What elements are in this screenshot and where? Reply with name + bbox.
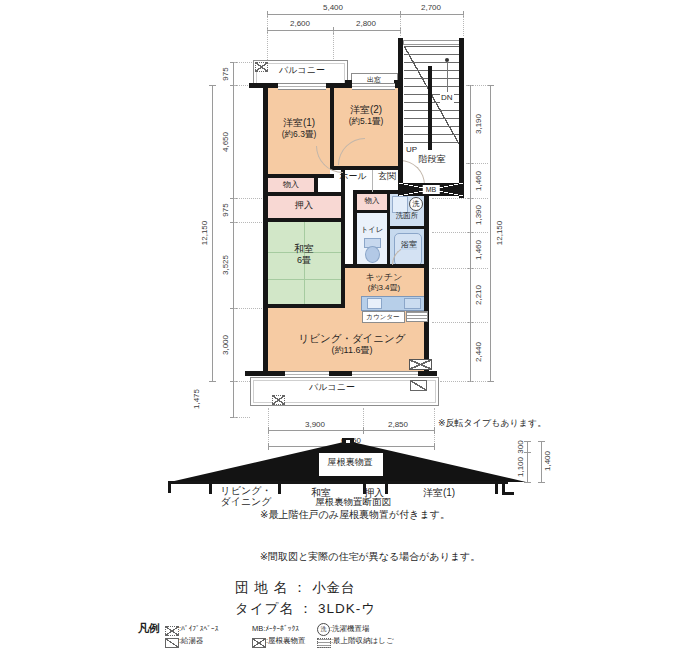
dim-left-3525: 3,525	[221, 255, 230, 275]
wall-stair-left	[398, 38, 403, 185]
dim-extension	[432, 268, 488, 269]
dim-right-1460b: 1,460	[474, 240, 483, 260]
washitsu-size: 6畳	[297, 256, 311, 266]
legend-laundry-icon: 洗	[317, 623, 330, 636]
dim-right-total: 12,150	[495, 221, 504, 245]
dim-line	[212, 85, 213, 381]
dim-left-3000: 3,000	[221, 335, 230, 355]
dim-tick	[209, 381, 216, 382]
section-yoshitsu1-label: 洋室(1)	[423, 487, 455, 498]
monoire-b-label: 物入	[365, 197, 380, 205]
section-dim-1100: 1,100	[516, 457, 525, 477]
dim-extension	[466, 163, 488, 164]
balcony-bottom-label: バルコニー	[307, 383, 357, 393]
dim-tick	[363, 427, 364, 434]
bath-label: 浴室	[401, 241, 417, 250]
legend-water-heater-label: :給湯器	[179, 637, 204, 645]
section-divider	[278, 484, 281, 494]
stair-landing	[403, 40, 461, 45]
dim-left-4650: 4,650	[221, 132, 230, 152]
wall-left	[263, 83, 268, 376]
section-living-label-2: ダイニング	[220, 496, 271, 507]
dim-line	[233, 62, 234, 417]
wall-corridor-left	[341, 170, 345, 308]
yoshitsu2-size: (約5.1畳)	[349, 117, 383, 126]
monoire-a-label: 物入	[283, 181, 299, 190]
dim-tick	[434, 427, 435, 434]
dim-left-975b: 975	[221, 203, 230, 216]
dim-tick	[487, 85, 494, 86]
roof-vent-hole	[346, 440, 350, 443]
stair-up-label: UP	[405, 146, 418, 155]
window-top-bay	[352, 83, 395, 90]
section-divider	[495, 484, 498, 494]
dim-extension	[432, 198, 488, 199]
dim-right-3190: 3,190	[474, 114, 483, 134]
legend-ladder-icon	[317, 638, 331, 648]
living-label: リビング・ダイニング	[298, 333, 405, 345]
genkan-step-line	[372, 170, 373, 192]
note-reverse-type: ※反転タイプもあります。	[438, 419, 546, 429]
dim-top-2800: 2,800	[356, 19, 376, 28]
wall-monoire-b-bottom	[353, 210, 390, 213]
water-heater-icon	[410, 380, 427, 391]
legend-mb-label: MB:ﾒｰﾀｰﾎﾞｯｸｽ	[252, 625, 299, 633]
legend-attic-label: :屋根裏物置	[266, 637, 306, 645]
legend-title: 凡例	[138, 622, 160, 634]
yoshitsu1-size: (約6.3畳)	[282, 130, 316, 139]
wall-monoire-right	[314, 174, 318, 194]
dim-extension	[234, 198, 262, 199]
dim-tick	[268, 427, 269, 434]
dim-line	[267, 14, 463, 15]
hall-label: ホール	[339, 172, 366, 182]
dim-right-2210: 2,210	[474, 285, 483, 305]
section-divider	[209, 484, 212, 494]
pipe-space-icon	[272, 395, 285, 405]
dim-right-1390: 1,390	[474, 205, 483, 225]
stair-dn-label: DN	[440, 94, 454, 103]
dim-tick	[209, 85, 216, 86]
counter-label: カウンター	[366, 313, 399, 320]
dim-tick	[538, 441, 545, 442]
dim-right-1460a: 1,460	[474, 171, 483, 191]
legend-attic-icon	[252, 638, 266, 648]
wall-stair-inner	[428, 66, 432, 150]
kitchen-label: キッチン	[366, 273, 403, 283]
stair-room-label: 階段室	[419, 155, 446, 165]
type-name-line: タイプ名 ： 3LDK-ウ	[235, 602, 376, 617]
stair-direction-line	[447, 62, 448, 92]
section-divider	[385, 484, 388, 494]
wall-toilet-divider	[387, 194, 390, 268]
wall-stair-right	[459, 38, 464, 198]
meter-box-label: MB	[423, 185, 440, 194]
wall-right-lower	[424, 194, 429, 376]
attic-storage-label: 屋根裏物置	[328, 458, 373, 468]
dim-bottom-2850: 2,850	[388, 420, 408, 429]
kitchen-sink	[367, 298, 382, 309]
legend-pipe-space-label: :ﾊﾟｲﾌﾟｽﾍﾟｰｽ	[179, 625, 219, 633]
kitchen-size: (約3.4畳)	[368, 284, 400, 293]
dim-extension	[463, 15, 464, 36]
dim-left-total: 12,150	[200, 221, 209, 245]
toilet-label: トイレ	[360, 226, 383, 234]
washitsu-label: 和室	[294, 243, 314, 254]
dim-tick	[487, 381, 494, 382]
wall-wash-left	[353, 190, 357, 268]
pipe-space-icon	[255, 62, 268, 72]
dim-extension	[234, 62, 252, 63]
tatami-line	[268, 279, 341, 280]
wall-kitchen-top	[345, 264, 429, 268]
genkan-label: 玄関	[378, 172, 396, 182]
roof-eave-hook-left	[168, 481, 171, 493]
senmenjo-label: 洗面所	[396, 212, 419, 220]
dim-bottom-3900: 3,900	[305, 420, 325, 429]
balcony-top-label: バルコニー	[277, 66, 327, 76]
kitchen-stove	[404, 298, 421, 309]
dim-extension	[432, 232, 488, 233]
oshiire-label: 押入	[293, 201, 315, 211]
dim-left-975a: 975	[221, 67, 230, 80]
yoshitsu1-label: 洋室(1)	[283, 117, 315, 128]
wall-bath-top	[390, 226, 427, 229]
laundry-mark-circle: 洗	[409, 197, 423, 211]
dim-top-5400: 5,400	[323, 3, 343, 12]
dim-tick	[524, 482, 531, 483]
dim-line	[268, 430, 434, 431]
living-size: (約11.6畳)	[332, 346, 373, 356]
dim-extension	[267, 15, 268, 60]
section-note: ※最上階住戸のみ屋根裏物置が付きます。	[260, 509, 450, 520]
dim-line	[470, 85, 471, 381]
dim-line	[527, 441, 528, 482]
attic-ladder-icon	[406, 311, 428, 322]
dim-extension	[234, 308, 262, 309]
dim-extension	[432, 322, 488, 323]
floor-plan-page: 5,400 2,700 2,600 2,800 975 4,650 975 3,…	[0, 0, 700, 650]
wall-yoshitsu1-bottom	[263, 174, 334, 178]
legend-water-heater-icon	[165, 638, 179, 648]
dim-extension	[234, 222, 262, 223]
section-dim-1400: 1,400	[543, 451, 552, 471]
dim-tick	[524, 452, 531, 453]
dim-top-2600: 2,600	[290, 19, 310, 28]
dim-tick	[524, 441, 531, 442]
legend-pipe-space-icon	[165, 626, 179, 636]
legend-ladder-label: :最上階収納はしご	[331, 637, 394, 645]
wall-washitsu-bottom	[263, 304, 345, 308]
roof-eave-line	[168, 481, 508, 484]
section-living-label-1: リビング・	[221, 485, 272, 496]
yoshitsu2-label: 洋室(2)	[350, 104, 382, 115]
dim-extension	[400, 15, 401, 36]
danchi-name-line: 団 地 名 ： 小金台	[235, 581, 356, 596]
section-dim-300: 300	[516, 440, 525, 453]
wall-oshiire-top	[263, 192, 345, 196]
dim-line	[490, 85, 491, 381]
legend-laundry-label: :洗濯機置場	[330, 625, 370, 633]
dim-right-2440: 2,440	[474, 342, 483, 362]
roof-eave-foot-right	[502, 492, 514, 495]
dim-extension	[234, 417, 250, 418]
attic-storage-icon	[409, 359, 432, 370]
dim-extension	[466, 85, 488, 86]
window-top-left	[278, 83, 326, 90]
dim-left-1475: 1,475	[192, 389, 201, 409]
dim-tick	[538, 482, 545, 483]
wall-washitsu-top	[263, 218, 345, 222]
stair-direction-dot	[445, 58, 449, 62]
dim-extension	[440, 381, 488, 382]
dim-top-2700: 2,700	[421, 3, 441, 12]
disclaimer-note: ※間取図と実際の住宅が異なる場合があります。	[260, 551, 481, 562]
toilet-bowl	[365, 246, 380, 263]
section-caption: 屋根裏物置断面図	[315, 497, 391, 507]
